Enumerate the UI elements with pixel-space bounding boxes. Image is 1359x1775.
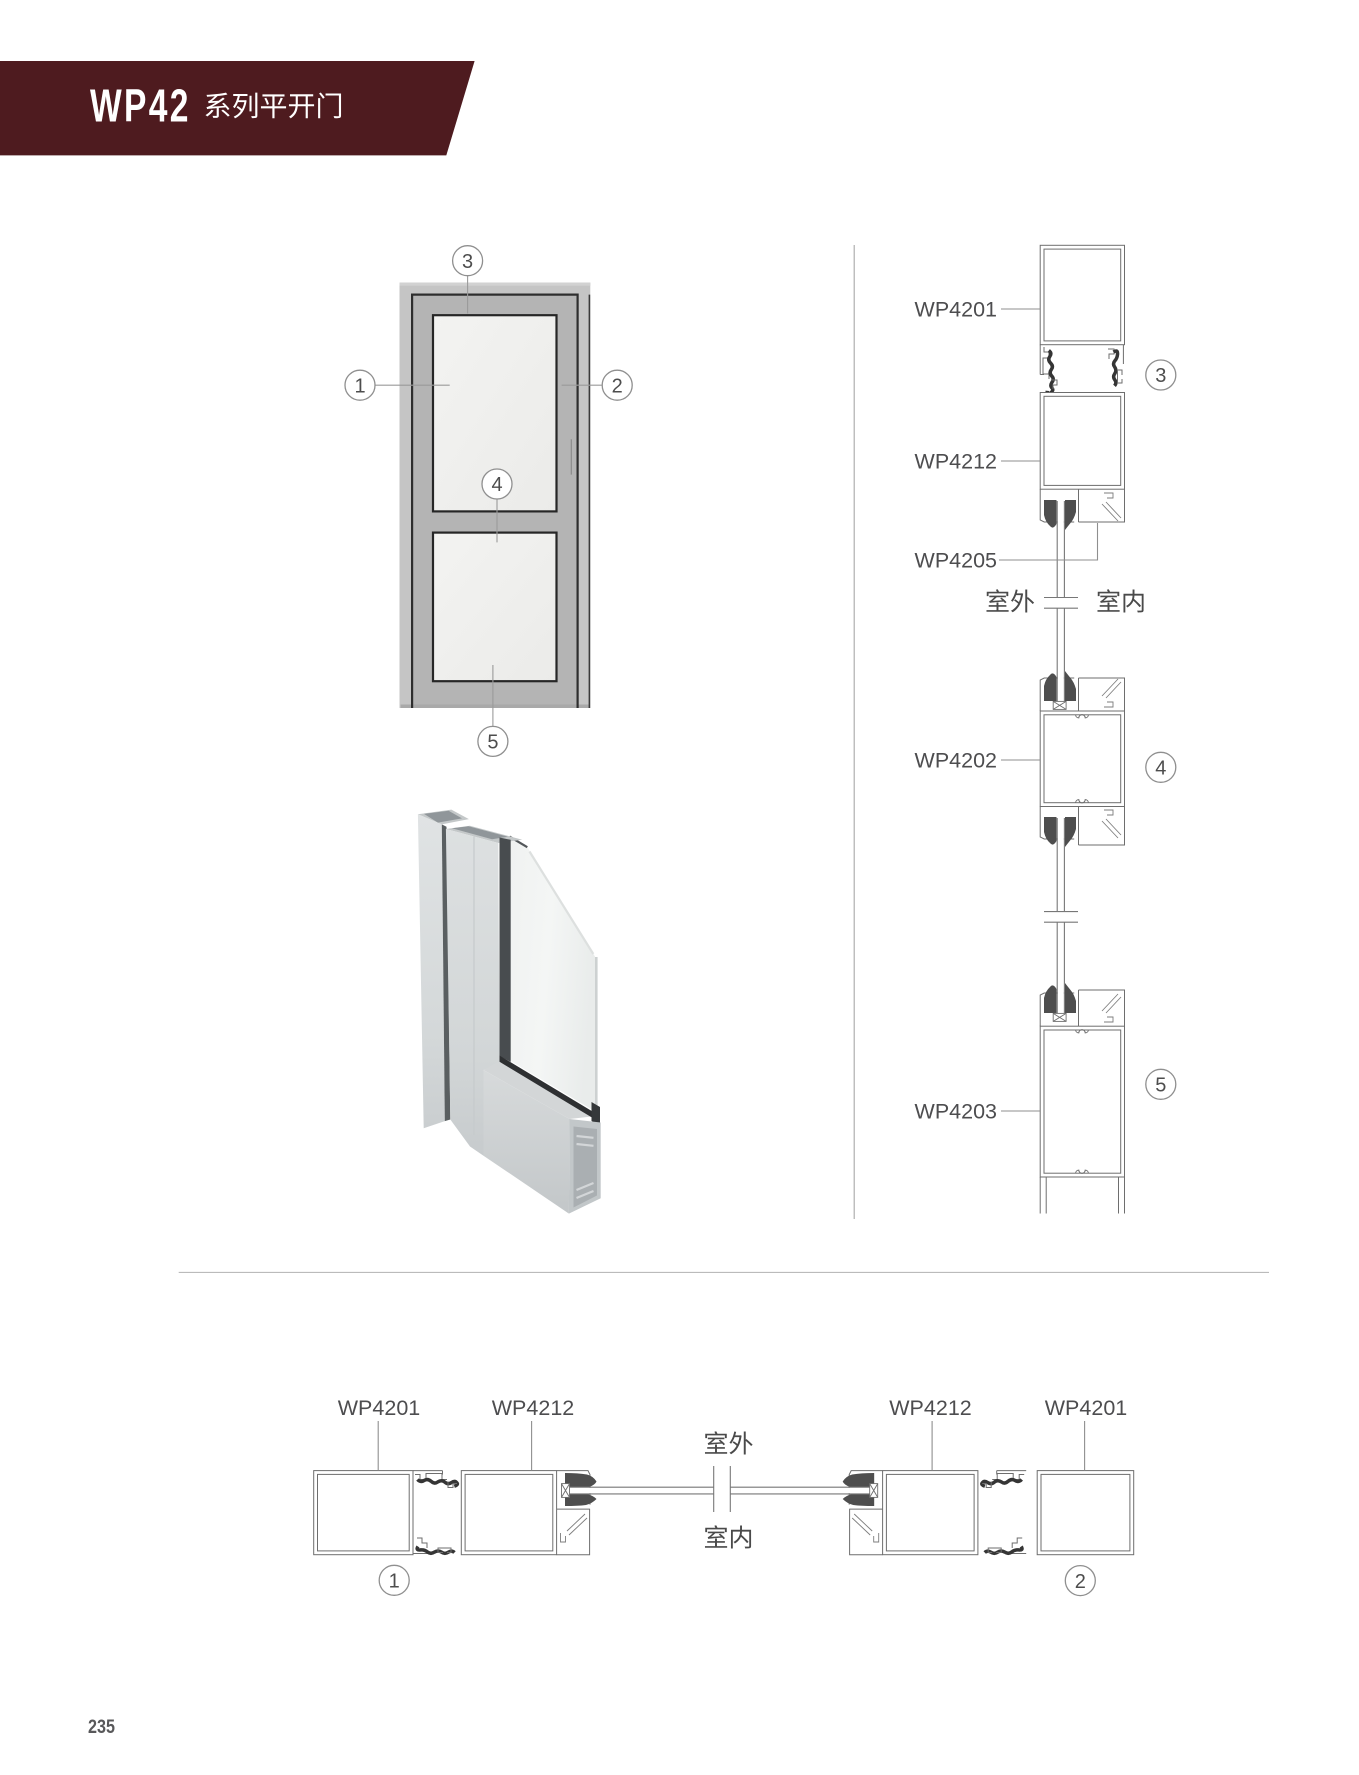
svg-text:WP4202: WP4202: [915, 749, 997, 773]
svg-text:5: 5: [487, 732, 498, 754]
svg-text:5: 5: [1155, 1075, 1166, 1097]
svg-text:WP4201: WP4201: [338, 1396, 420, 1420]
svg-text:WP4205: WP4205: [915, 549, 998, 573]
svg-text:235: 235: [88, 1716, 115, 1738]
svg-text:WP42: WP42: [90, 80, 191, 131]
svg-text:WP4212: WP4212: [889, 1396, 971, 1420]
svg-text:WP4212: WP4212: [915, 450, 997, 474]
svg-text:4: 4: [491, 474, 502, 496]
svg-text:2: 2: [1075, 1571, 1086, 1593]
svg-text:WP4212: WP4212: [492, 1396, 574, 1420]
svg-text:3: 3: [462, 251, 473, 273]
svg-text:1: 1: [354, 375, 365, 397]
svg-text:2: 2: [612, 375, 623, 397]
svg-text:WP4201: WP4201: [1045, 1396, 1127, 1420]
svg-text:WP4203: WP4203: [915, 1100, 998, 1124]
svg-text:1: 1: [389, 1571, 400, 1593]
svg-text:WP4201: WP4201: [915, 298, 997, 322]
svg-text:3: 3: [1155, 365, 1166, 387]
svg-text:4: 4: [1155, 758, 1166, 780]
